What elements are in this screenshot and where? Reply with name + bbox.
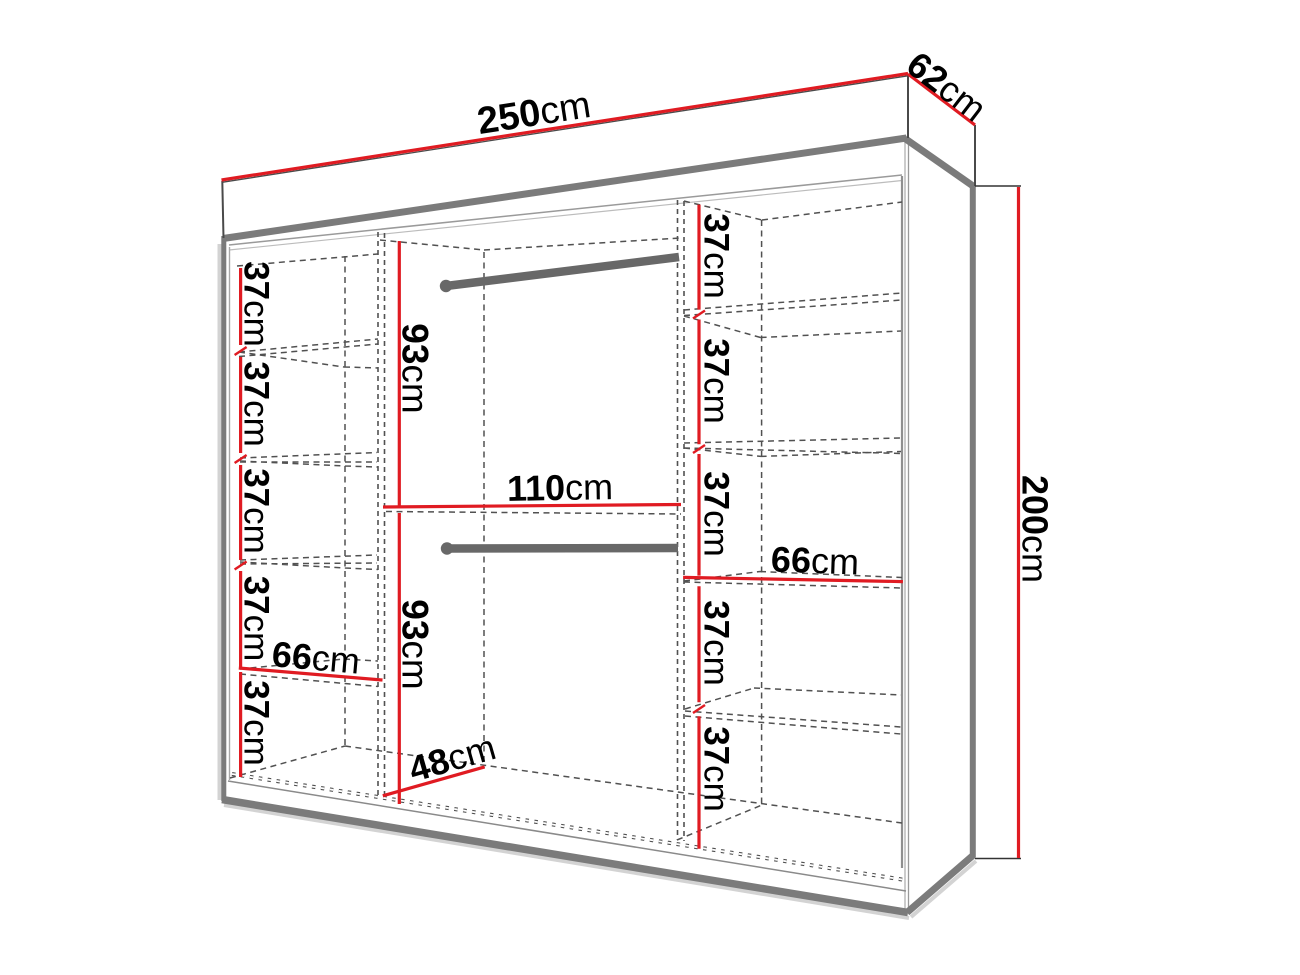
svg-text:93cm: 93cm bbox=[395, 599, 436, 689]
svg-text:110cm: 110cm bbox=[507, 466, 614, 509]
svg-text:37cm: 37cm bbox=[697, 600, 736, 686]
svg-text:37cm: 37cm bbox=[237, 361, 276, 447]
svg-text:200cm: 200cm bbox=[1015, 475, 1056, 583]
svg-text:66cm: 66cm bbox=[270, 633, 361, 682]
svg-text:66cm: 66cm bbox=[770, 538, 859, 582]
svg-text:37cm: 37cm bbox=[697, 471, 736, 557]
svg-text:37cm: 37cm bbox=[697, 213, 736, 299]
svg-text:37cm: 37cm bbox=[697, 726, 736, 812]
svg-text:37cm: 37cm bbox=[237, 576, 276, 662]
svg-text:37cm: 37cm bbox=[237, 261, 276, 347]
svg-text:37cm: 37cm bbox=[697, 338, 736, 424]
svg-text:37cm: 37cm bbox=[237, 468, 276, 554]
svg-text:93cm: 93cm bbox=[395, 323, 436, 413]
svg-text:37cm: 37cm bbox=[237, 680, 276, 766]
